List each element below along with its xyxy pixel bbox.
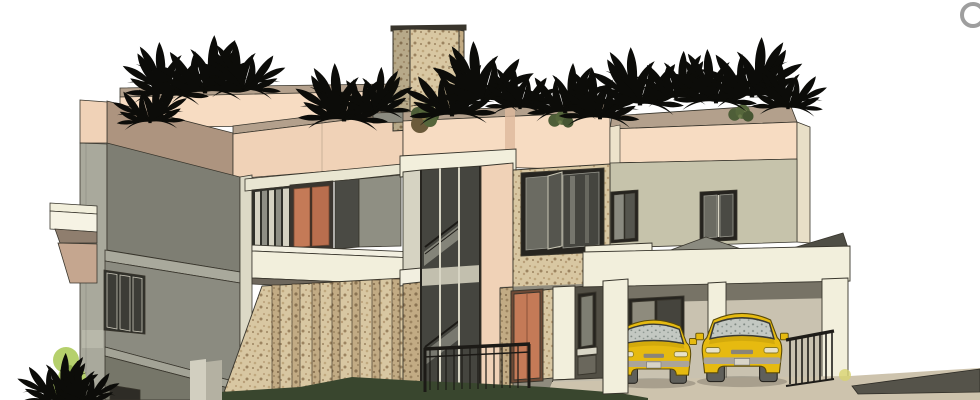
low-wall bbox=[190, 359, 206, 400]
right-wing-window-right bbox=[700, 190, 737, 242]
balcony-door bbox=[290, 181, 333, 252]
right-wing-window-left bbox=[611, 190, 638, 243]
render-canvas bbox=[0, 0, 980, 400]
carport-column-left bbox=[603, 279, 628, 394]
balcony-side-panel bbox=[359, 175, 401, 247]
low-wall bbox=[206, 360, 222, 400]
balcony bbox=[245, 164, 415, 292]
balcony-window bbox=[335, 179, 359, 249]
west-slat-window bbox=[104, 270, 145, 334]
porch-column bbox=[553, 286, 575, 380]
corner-post-cap bbox=[80, 100, 107, 143]
entry-door[interactable] bbox=[511, 289, 543, 383]
right-wing-parapet bbox=[610, 122, 797, 163]
right-wing-end-cap bbox=[797, 122, 810, 243]
stair-glazing bbox=[400, 149, 516, 395]
shrub-small bbox=[839, 369, 851, 381]
porch-window bbox=[577, 292, 597, 375]
balcony-louver-screen bbox=[252, 186, 292, 252]
entry-upper-window bbox=[521, 168, 604, 256]
